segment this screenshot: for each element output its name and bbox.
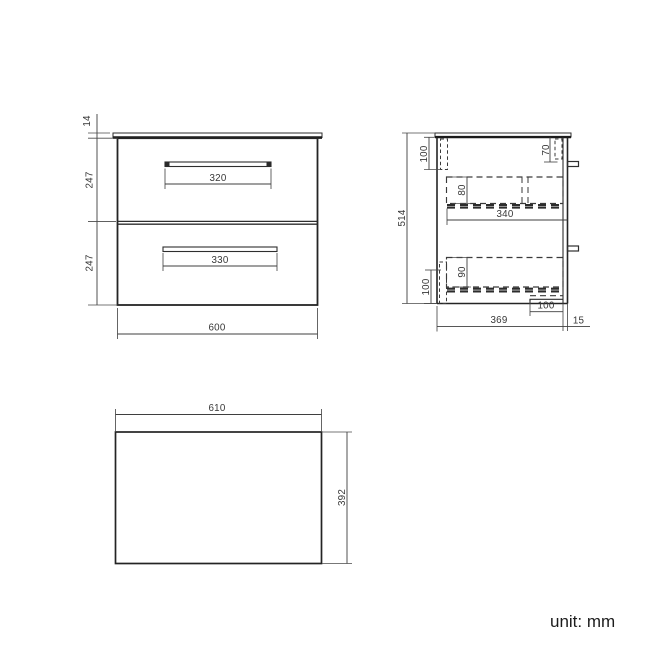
dim-label-bottom-left-clearance: 100 (421, 278, 432, 295)
side-bottom-left-rail (440, 262, 447, 304)
dim-label-drawer-length: 340 (497, 209, 514, 220)
dim-label-overall-width: 600 (209, 323, 226, 334)
dim-label-top-handle-width: 320 (210, 173, 227, 184)
drawing-svg: 320 330 14 247 247 600 (0, 0, 650, 650)
dim-label-countertop-width: 610 (209, 403, 226, 414)
dim-label-handle-projection: 15 (573, 316, 585, 327)
dim-label-countertop-thickness: 14 (82, 115, 93, 127)
vanity-technical-drawing: 320 330 14 247 247 600 (0, 0, 650, 650)
dim-label-countertop-depth: 392 (337, 489, 348, 506)
front-top-handle-cap-left (165, 162, 170, 167)
dim-label-top-drawer-depth: 80 (457, 184, 468, 196)
side-top-left-rail (441, 139, 448, 170)
side-top-right-rail (555, 139, 562, 159)
side-top-handle (568, 162, 579, 167)
top-view: 610 392 (116, 403, 353, 564)
dim-label-bottom-recess-width: 100 (538, 301, 555, 312)
dim-label-top-left-clearance: 100 (419, 145, 430, 162)
front-bottom-handle (163, 247, 277, 252)
side-bottom-handle (568, 246, 579, 251)
dim-label-overall-height: 514 (397, 209, 408, 226)
dim-label-top-right-clearance: 70 (541, 144, 552, 156)
dim-label-overall-depth: 369 (491, 315, 508, 326)
side-view: 100 80 340 70 90 (397, 133, 590, 332)
front-top-handle-cap-right (267, 162, 272, 167)
top-countertop-outline (116, 432, 322, 564)
dim-label-top-drawer-height: 247 (85, 172, 96, 189)
dim-label-bottom-handle-width: 330 (212, 255, 229, 266)
unit-note: unit: mm (550, 612, 615, 631)
dim-label-bottom-drawer-depth: 90 (457, 266, 468, 278)
dim-label-bottom-drawer-height: 247 (85, 255, 96, 272)
front-view: 320 330 14 247 247 600 (82, 114, 322, 339)
front-top-handle (165, 162, 271, 167)
